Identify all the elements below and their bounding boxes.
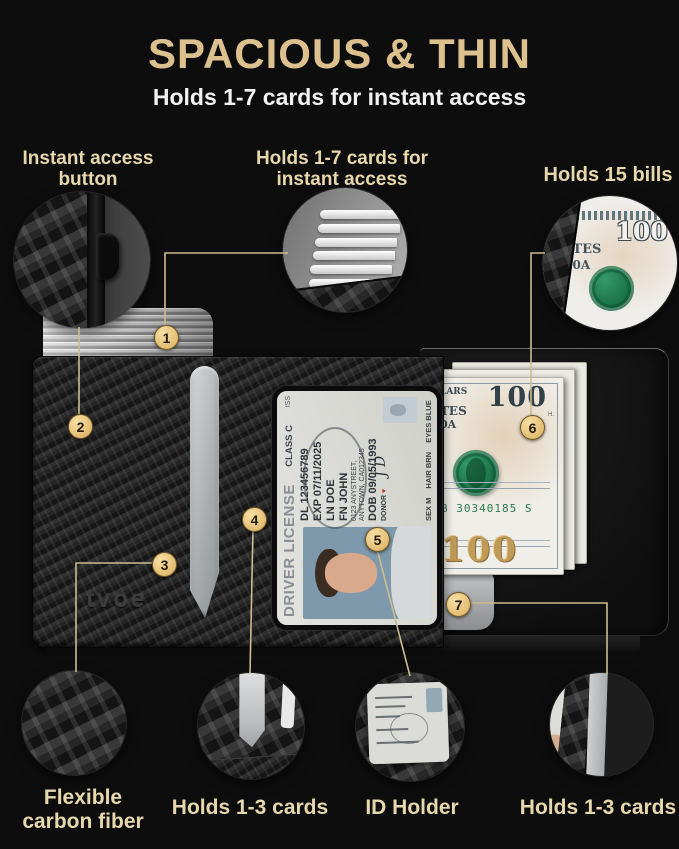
license-signature: J D — [372, 455, 389, 477]
license-donor-text: DONOR — [381, 495, 388, 521]
callout-line: carbon fiber — [22, 810, 143, 833]
mini-id-card — [367, 681, 450, 764]
bill-denomination: 100 — [615, 217, 667, 246]
mini-id-photo — [426, 688, 443, 713]
bill-fine-print-lines — [440, 488, 550, 489]
bill-mark: H. — [548, 412, 554, 418]
callout-holds-15-bills: Holds 15 bills — [520, 164, 679, 186]
license-ghost-photo — [383, 397, 417, 423]
callout-holds-1-3-cards-left: Holds 1-3 cards — [166, 796, 334, 820]
mini-id-ghost-oval — [390, 712, 428, 744]
card-edge — [318, 224, 400, 233]
card-edge — [313, 251, 395, 260]
id-window-card: DRIVER LICENSE CLASS C ISS DL 123456789 … — [277, 391, 437, 625]
callout-holds-1-7-cards: Holds 1-7 cards for instant access — [238, 148, 446, 191]
page-title: SPACIOUS & THIN — [0, 30, 679, 78]
inset-carbon-fiber-texture — [22, 671, 126, 775]
bill-denomination-top: 100 — [488, 382, 547, 413]
marker-6: 6 — [520, 415, 545, 440]
callout-holds-1-3-cards-right: Holds 1-3 cards — [514, 796, 679, 820]
license-iss: ISS — [285, 396, 292, 407]
carbon-texture — [14, 192, 90, 328]
bill-partial-text: LARS — [440, 387, 467, 397]
callout-instant-access-button: Instant access button — [2, 148, 174, 191]
callout-line: Flexible — [44, 786, 122, 809]
product-infographic: SPACIOUS & THIN Holds 1-7 cards for inst… — [0, 0, 679, 849]
license-hair: HAIR BRN — [424, 452, 433, 489]
marker-3: 3 — [152, 552, 177, 577]
callout-line: Holds 1-7 cards for — [256, 148, 428, 169]
license-sex: SEX M — [424, 498, 433, 521]
carbon-texture — [198, 753, 304, 779]
callout-id-holder: ID Holder — [328, 796, 496, 820]
mini-id-text-line — [375, 705, 405, 708]
mini-id-text-line — [375, 695, 412, 698]
bill-serial-number: B 30340185 S — [441, 502, 532, 515]
card-edge — [315, 238, 397, 247]
brand-logo: tvoe — [86, 586, 147, 614]
marker-7: 7 — [446, 592, 471, 617]
pop-up-button — [96, 233, 119, 281]
callout-flexible-carbon-fiber: Flexible carbon fiber — [4, 786, 162, 833]
marker-4: 4 — [242, 507, 267, 532]
marker-5: 5 — [365, 527, 390, 552]
license-dob: DOB 09/05/1993 — [367, 438, 380, 521]
callout-line: button — [58, 169, 117, 190]
inset-bill-closeup: 100 TES 0A — [543, 196, 677, 330]
inset-instant-access-button — [14, 192, 150, 328]
license-donor: DONOR ♥ — [381, 489, 388, 521]
card-edge — [586, 673, 607, 776]
inset-id-holder — [356, 673, 464, 781]
card-edge — [280, 673, 296, 728]
inset-card-fan — [283, 188, 407, 312]
bill-partial-text: TES — [440, 404, 467, 418]
callout-line: instant access — [277, 169, 408, 190]
callout-line: Instant access — [23, 148, 154, 169]
marker-1: 1 — [154, 325, 179, 350]
driver-license: DRIVER LICENSE CLASS C ISS DL 123456789 … — [277, 391, 437, 625]
license-ghost-oval — [303, 427, 367, 529]
bill-partial-text: 0A — [572, 258, 590, 272]
page-subtitle: Holds 1-7 cards for instant access — [0, 84, 679, 111]
donor-heart-icon: ♥ — [381, 489, 388, 493]
thumb-slide-slot — [190, 366, 219, 618]
license-class: CLASS C — [284, 425, 295, 467]
card-edge — [310, 265, 392, 274]
card-edge — [320, 210, 402, 219]
inset-card-slot — [198, 673, 304, 779]
dollar-bill-front: LARS 100 H. TES 0A B 30340185 S 100 — [430, 377, 564, 575]
franklin-seal — [589, 266, 635, 312]
inset-card-slot-right — [550, 673, 653, 776]
thumb-slide-slot — [239, 673, 264, 747]
license-header: DRIVER LICENSE — [281, 484, 298, 617]
bill-denomination-bottom: 100 — [441, 530, 518, 570]
license-bottom-row: SEX M HAIR BRN EYES BLUE — [424, 393, 433, 521]
license-eyes: EYES BLUE — [424, 400, 433, 443]
marker-2: 2 — [68, 414, 93, 439]
bill-partial-text: TES — [572, 242, 601, 257]
franklin-seal — [453, 450, 499, 496]
